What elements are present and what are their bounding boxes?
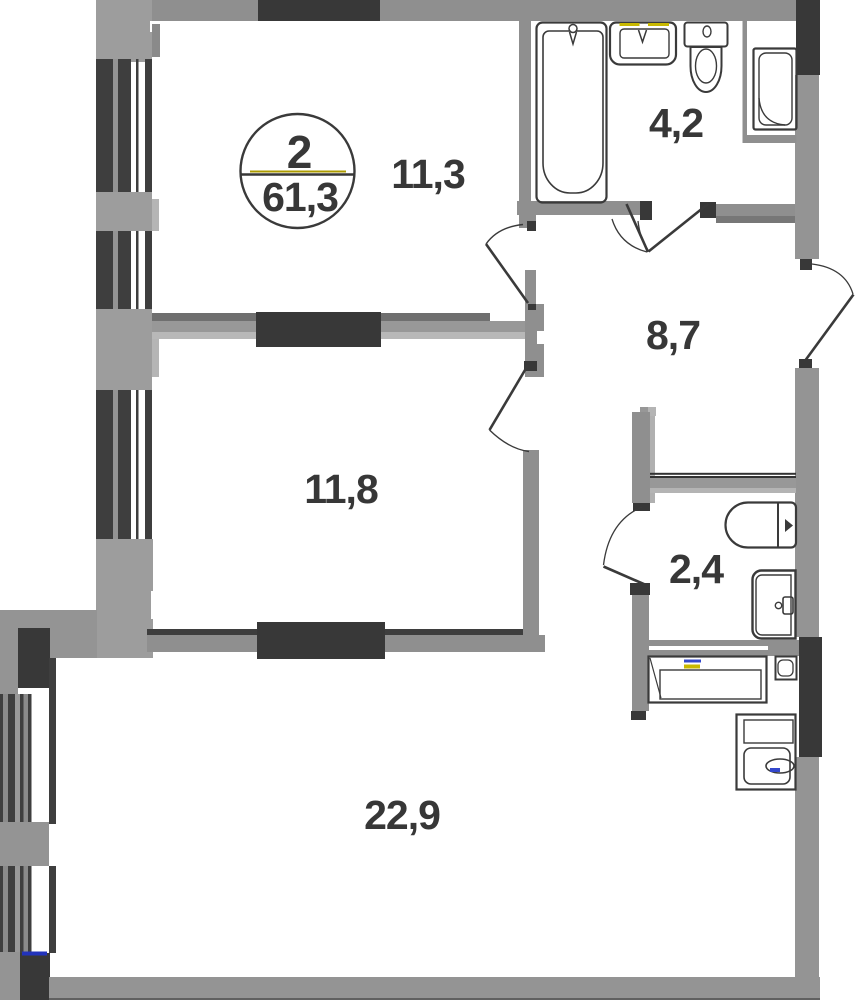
- svg-text:11,8: 11,8: [304, 466, 378, 512]
- svg-text:2,4: 2,4: [669, 546, 724, 592]
- svg-text:4,2: 4,2: [649, 100, 703, 146]
- svg-text:22,9: 22,9: [364, 792, 440, 838]
- svg-text:61,3: 61,3: [262, 174, 338, 220]
- svg-text:2: 2: [287, 126, 312, 178]
- svg-text:11,3: 11,3: [391, 151, 465, 197]
- svg-text:8,7: 8,7: [646, 312, 700, 358]
